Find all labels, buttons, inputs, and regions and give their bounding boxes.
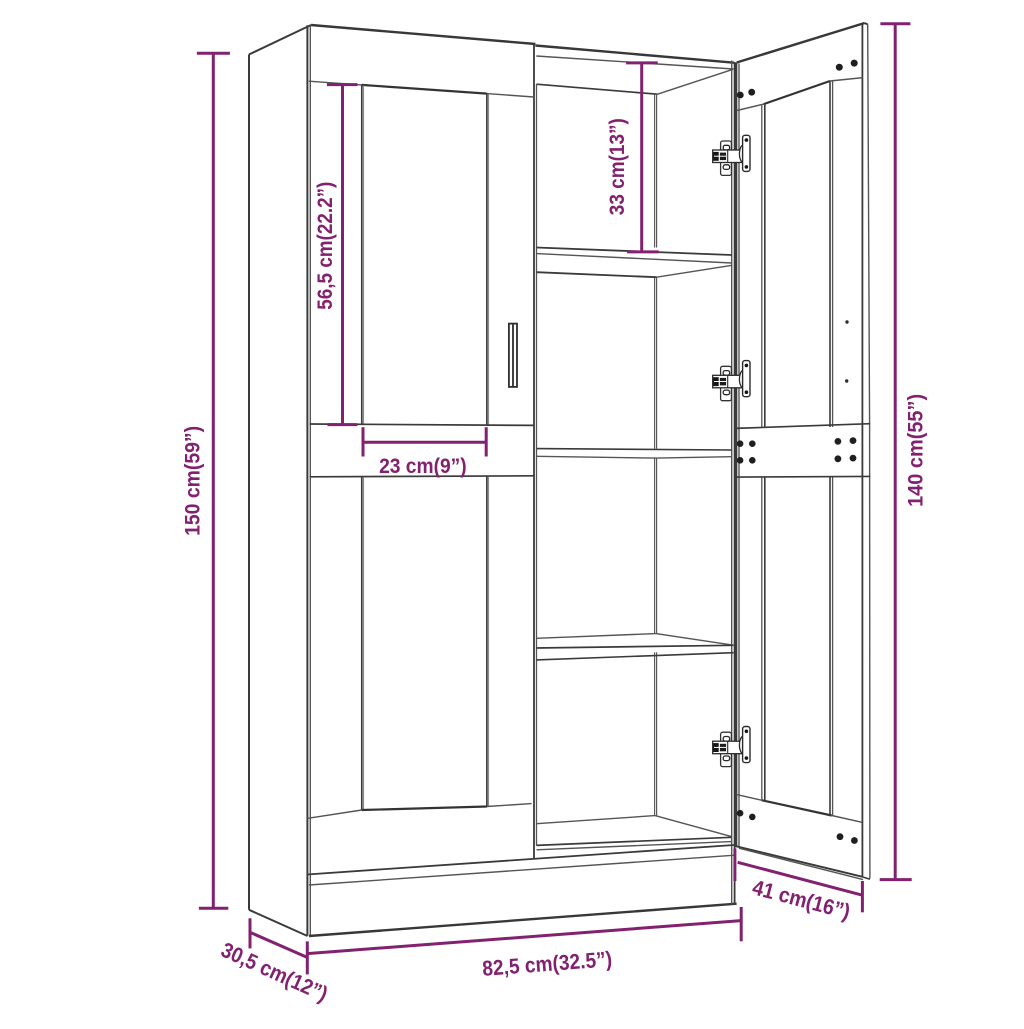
svg-text:150 cm(59”): 150 cm(59”) (181, 426, 205, 536)
svg-text:140 cm(55”): 140 cm(55”) (904, 394, 928, 507)
svg-text:56,5 cm(22.2”): 56,5 cm(22.2”) (313, 182, 337, 310)
svg-text:23 cm(9”): 23 cm(9”) (379, 454, 467, 478)
svg-text:33 cm(13”): 33 cm(13”) (605, 118, 629, 215)
